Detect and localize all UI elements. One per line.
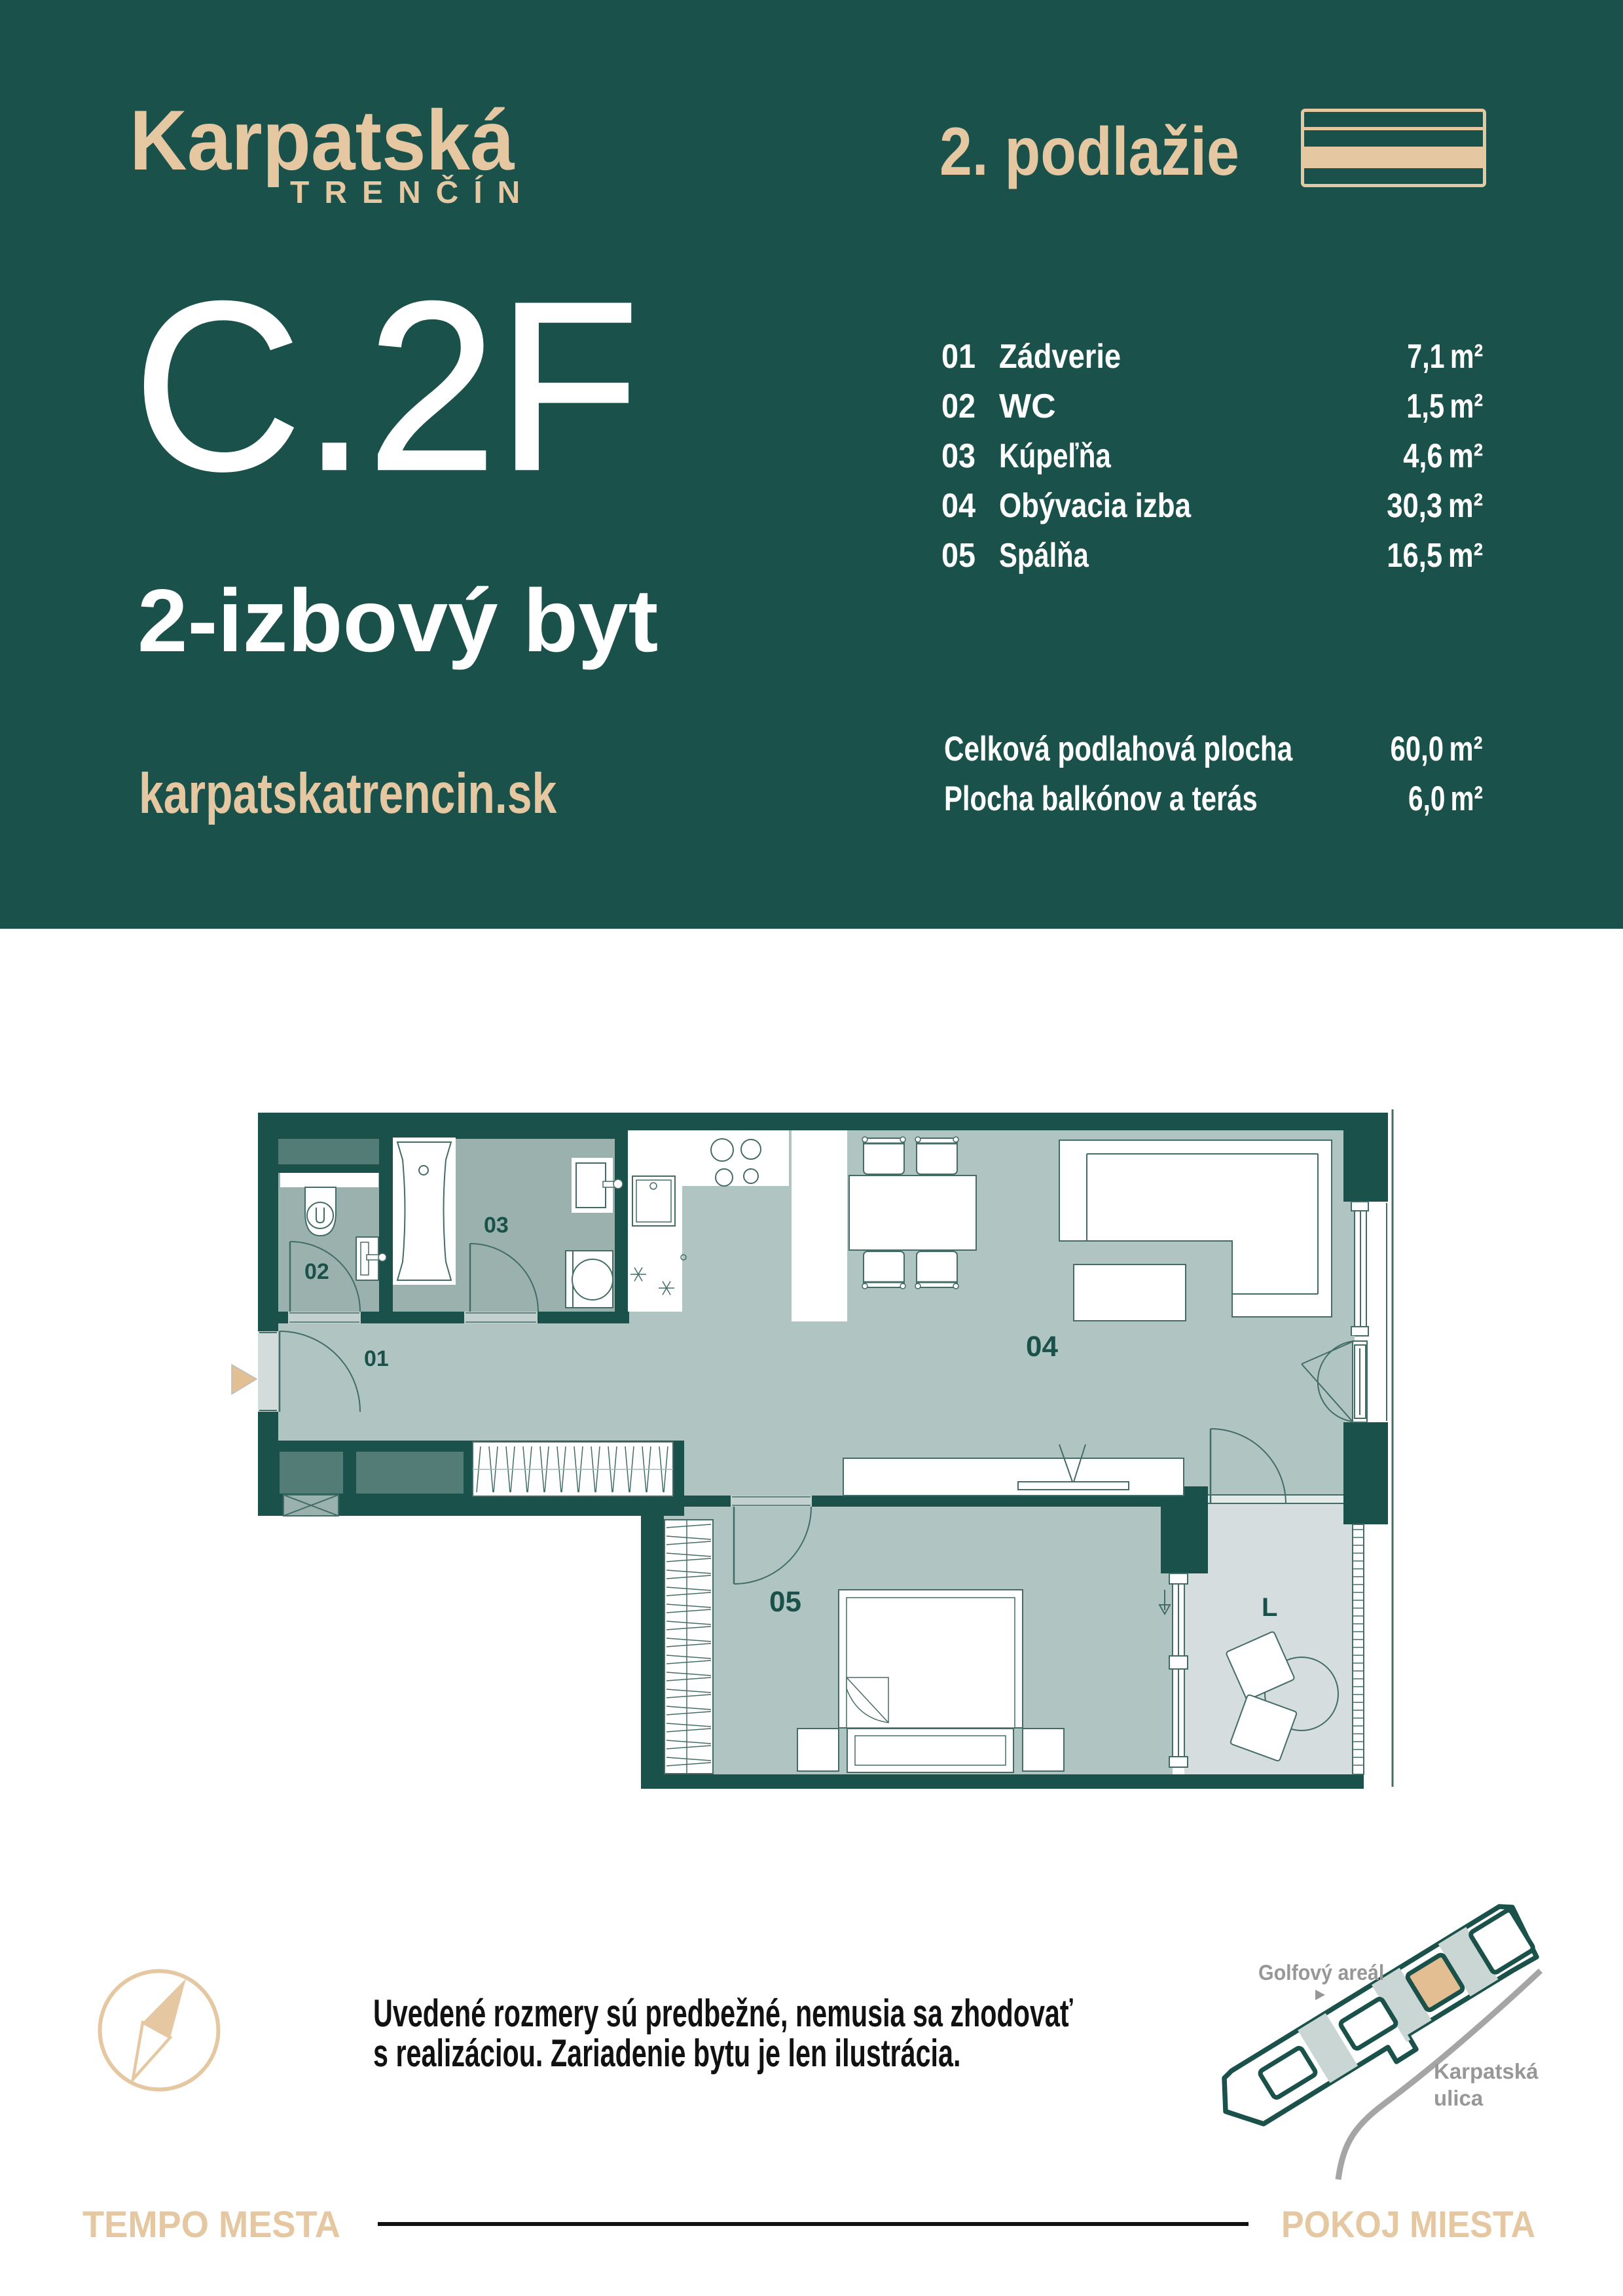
svg-text:Karpatskáulica: Karpatskáulica: [1434, 2059, 1539, 2110]
svg-text:Golfový areál: Golfový areál: [1258, 1960, 1384, 1984]
